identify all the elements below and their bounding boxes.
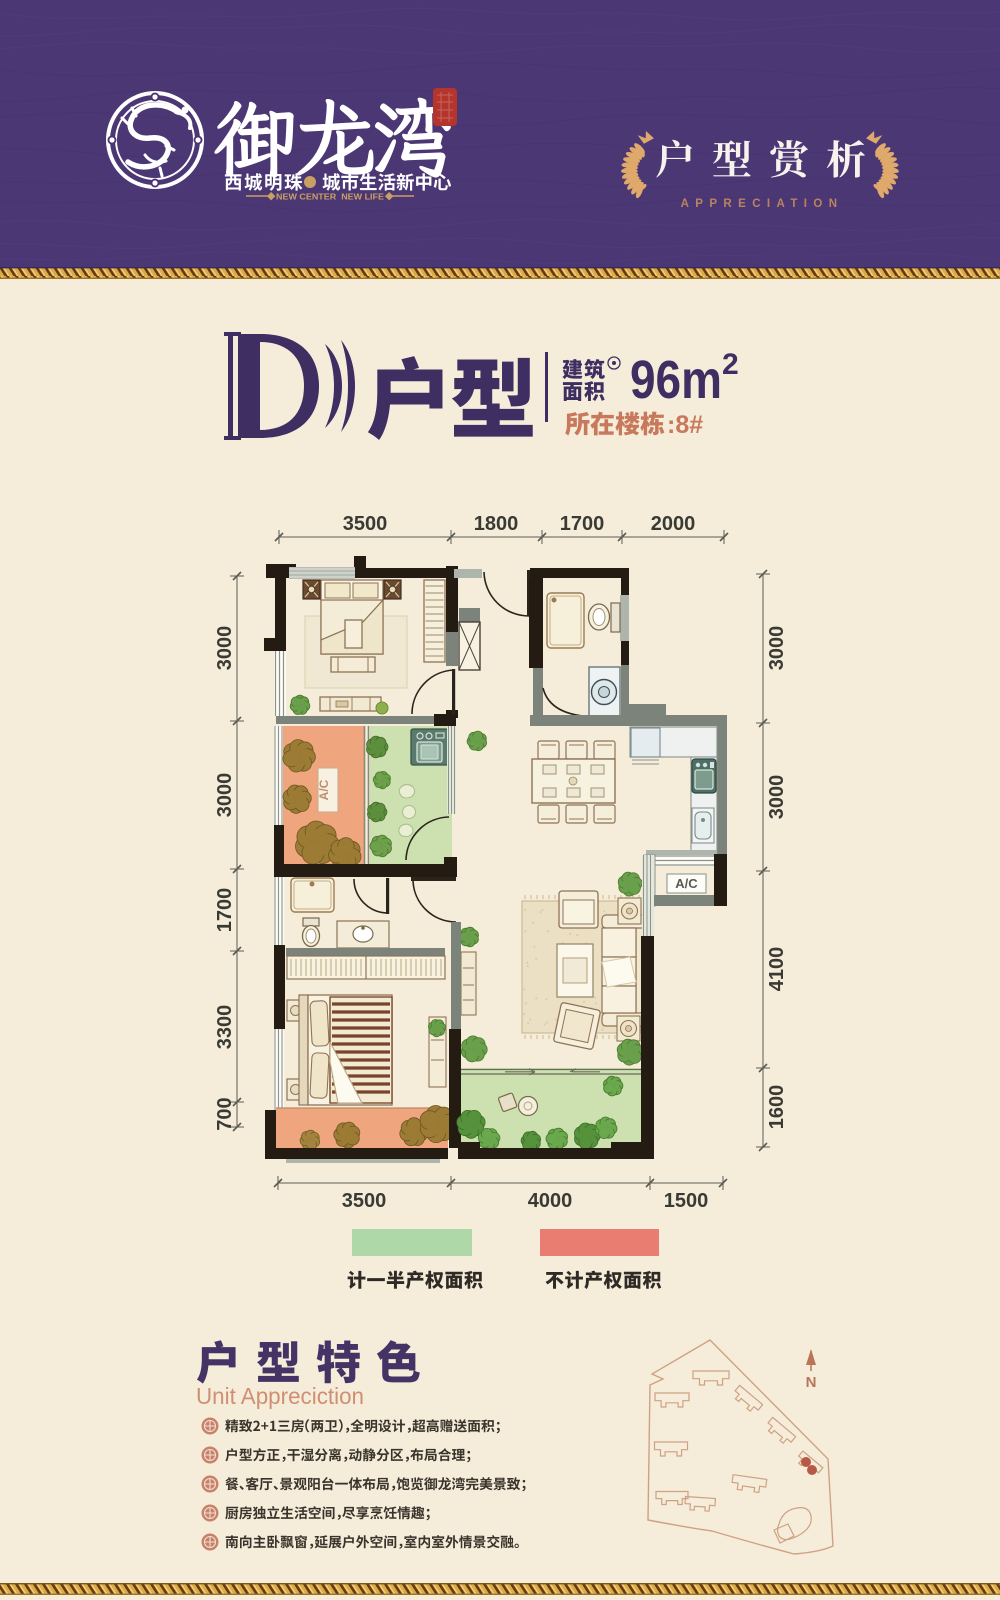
svg-text:700: 700 — [214, 1097, 236, 1130]
svg-text:4000: 4000 — [528, 1190, 573, 1212]
svg-text:3500: 3500 — [342, 1190, 387, 1212]
svg-text:A/C: A/C — [317, 779, 331, 800]
svg-text:Unit Appreciction: Unit Appreciction — [196, 1383, 364, 1409]
svg-text:A/C: A/C — [675, 876, 698, 891]
svg-text:1700: 1700 — [214, 888, 236, 933]
svg-text:N: N — [806, 1374, 817, 1391]
svg-text:1600: 1600 — [766, 1085, 788, 1130]
svg-text:1500: 1500 — [664, 1190, 709, 1212]
svg-text:NEW CENTER NEW LIFE: NEW CENTER NEW LIFE — [276, 192, 384, 202]
svg-text:3000: 3000 — [766, 775, 788, 820]
svg-text:3000: 3000 — [766, 626, 788, 671]
svg-text:2000: 2000 — [651, 513, 696, 535]
svg-text::8#: :8# — [667, 411, 703, 439]
svg-text:1800: 1800 — [474, 513, 519, 535]
svg-text:1700: 1700 — [560, 513, 605, 535]
svg-text:2: 2 — [722, 348, 739, 381]
svg-text:96m: 96m — [630, 350, 722, 410]
svg-text:APPRECIATION: APPRECIATION — [681, 198, 844, 210]
svg-text:3000: 3000 — [214, 626, 236, 671]
svg-text:3500: 3500 — [343, 513, 388, 535]
svg-text:3300: 3300 — [214, 1005, 236, 1050]
svg-text:4100: 4100 — [766, 947, 788, 992]
svg-text:3000: 3000 — [214, 773, 236, 818]
